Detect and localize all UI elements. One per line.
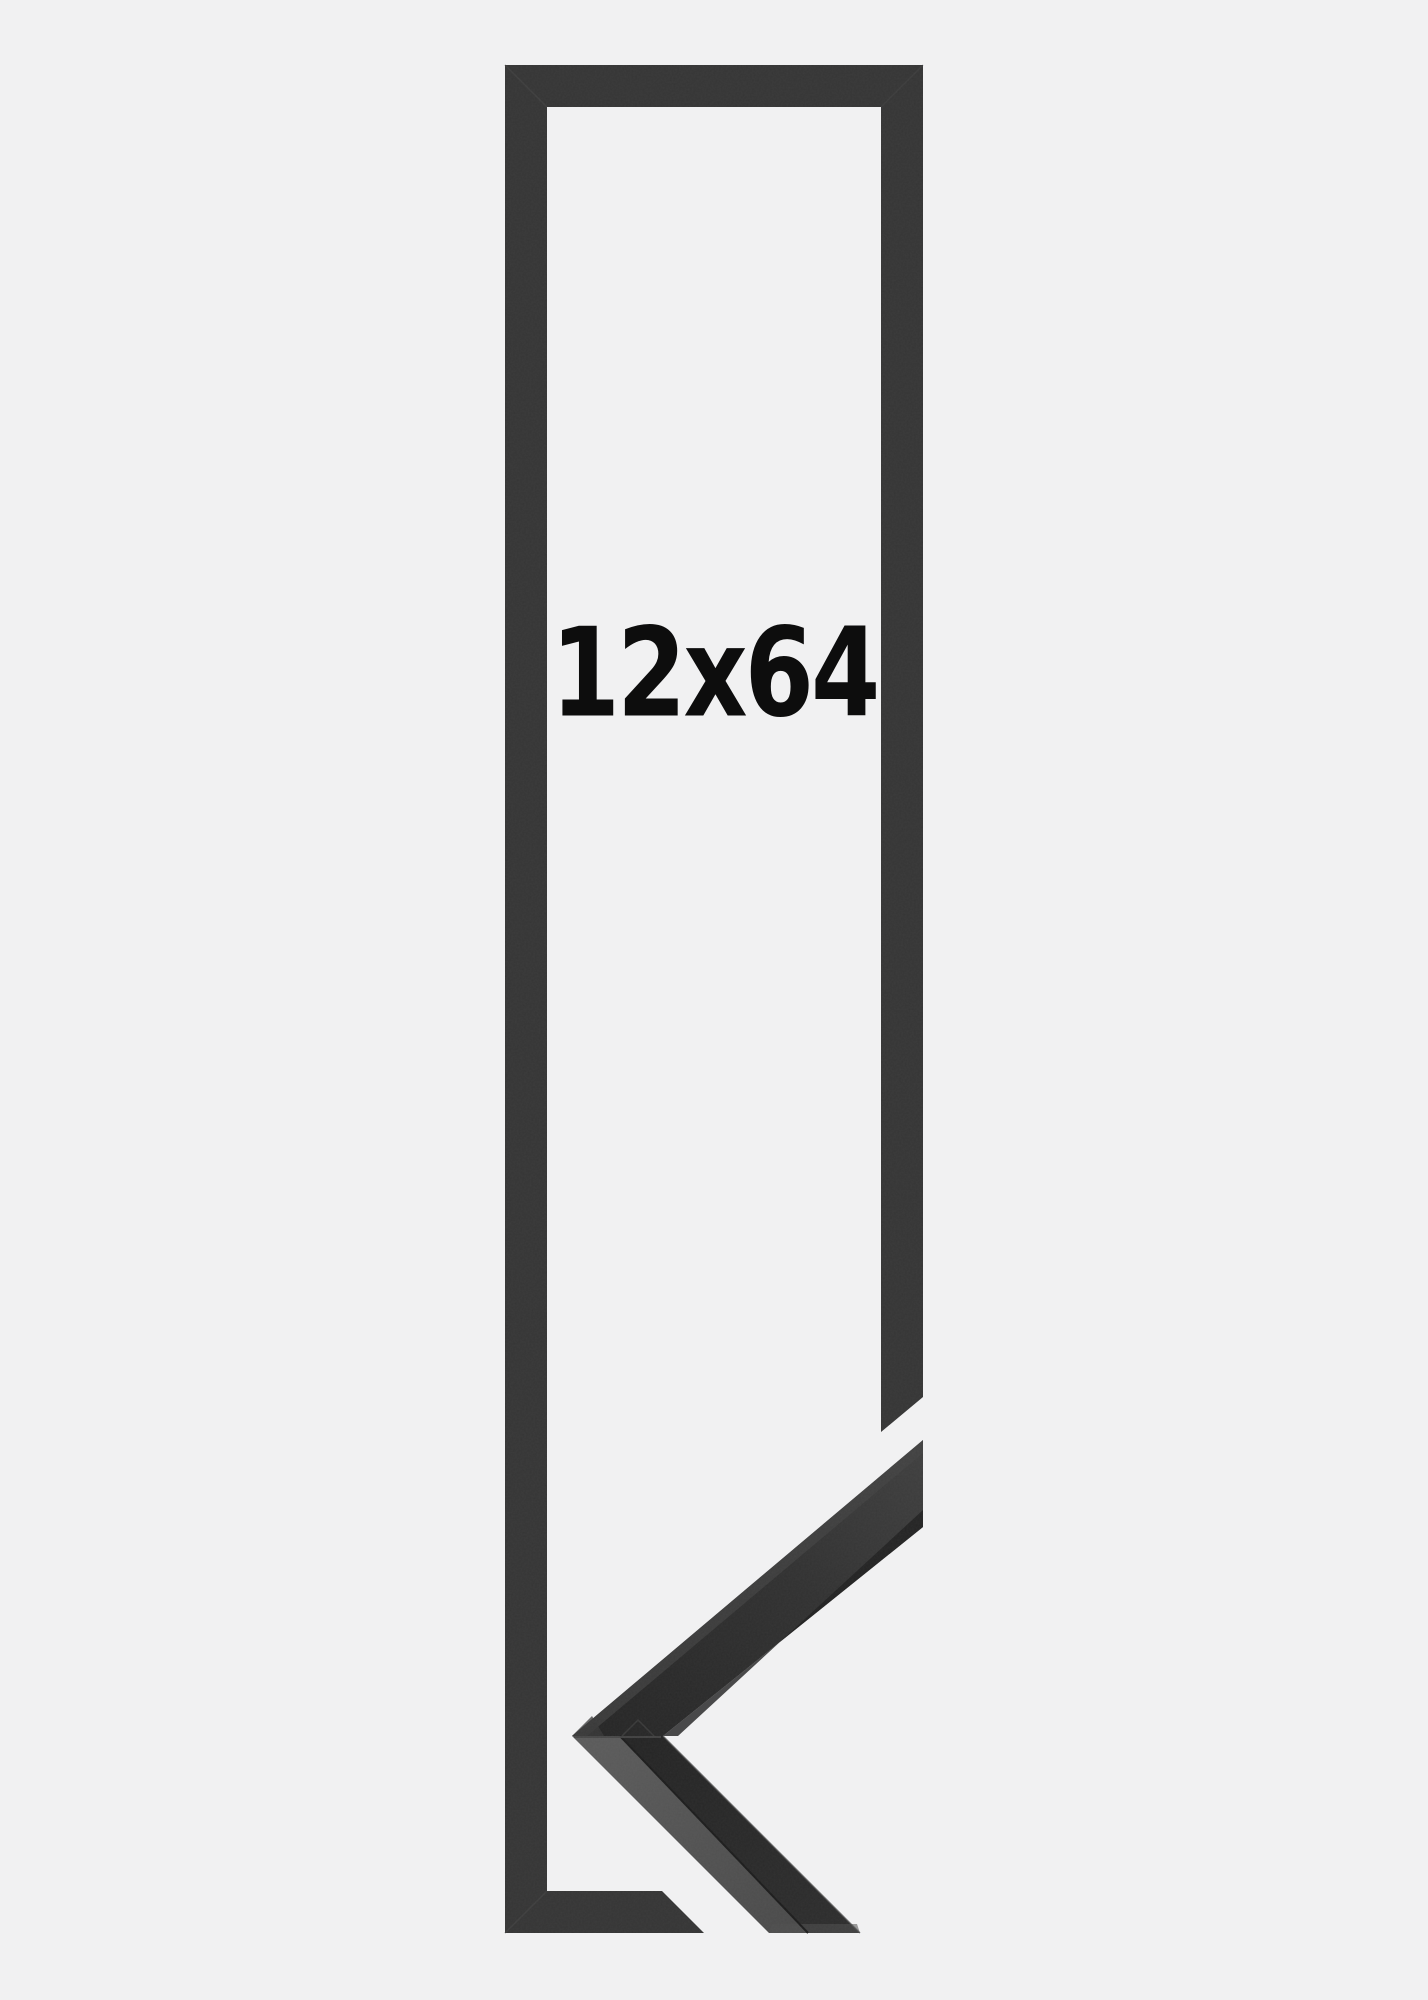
frame-size-product-image: 12x64 [0,0,1428,2000]
size-label: 12x64 [551,613,878,736]
frame-illustration [0,0,1428,2000]
grain-overlay [505,65,923,1933]
